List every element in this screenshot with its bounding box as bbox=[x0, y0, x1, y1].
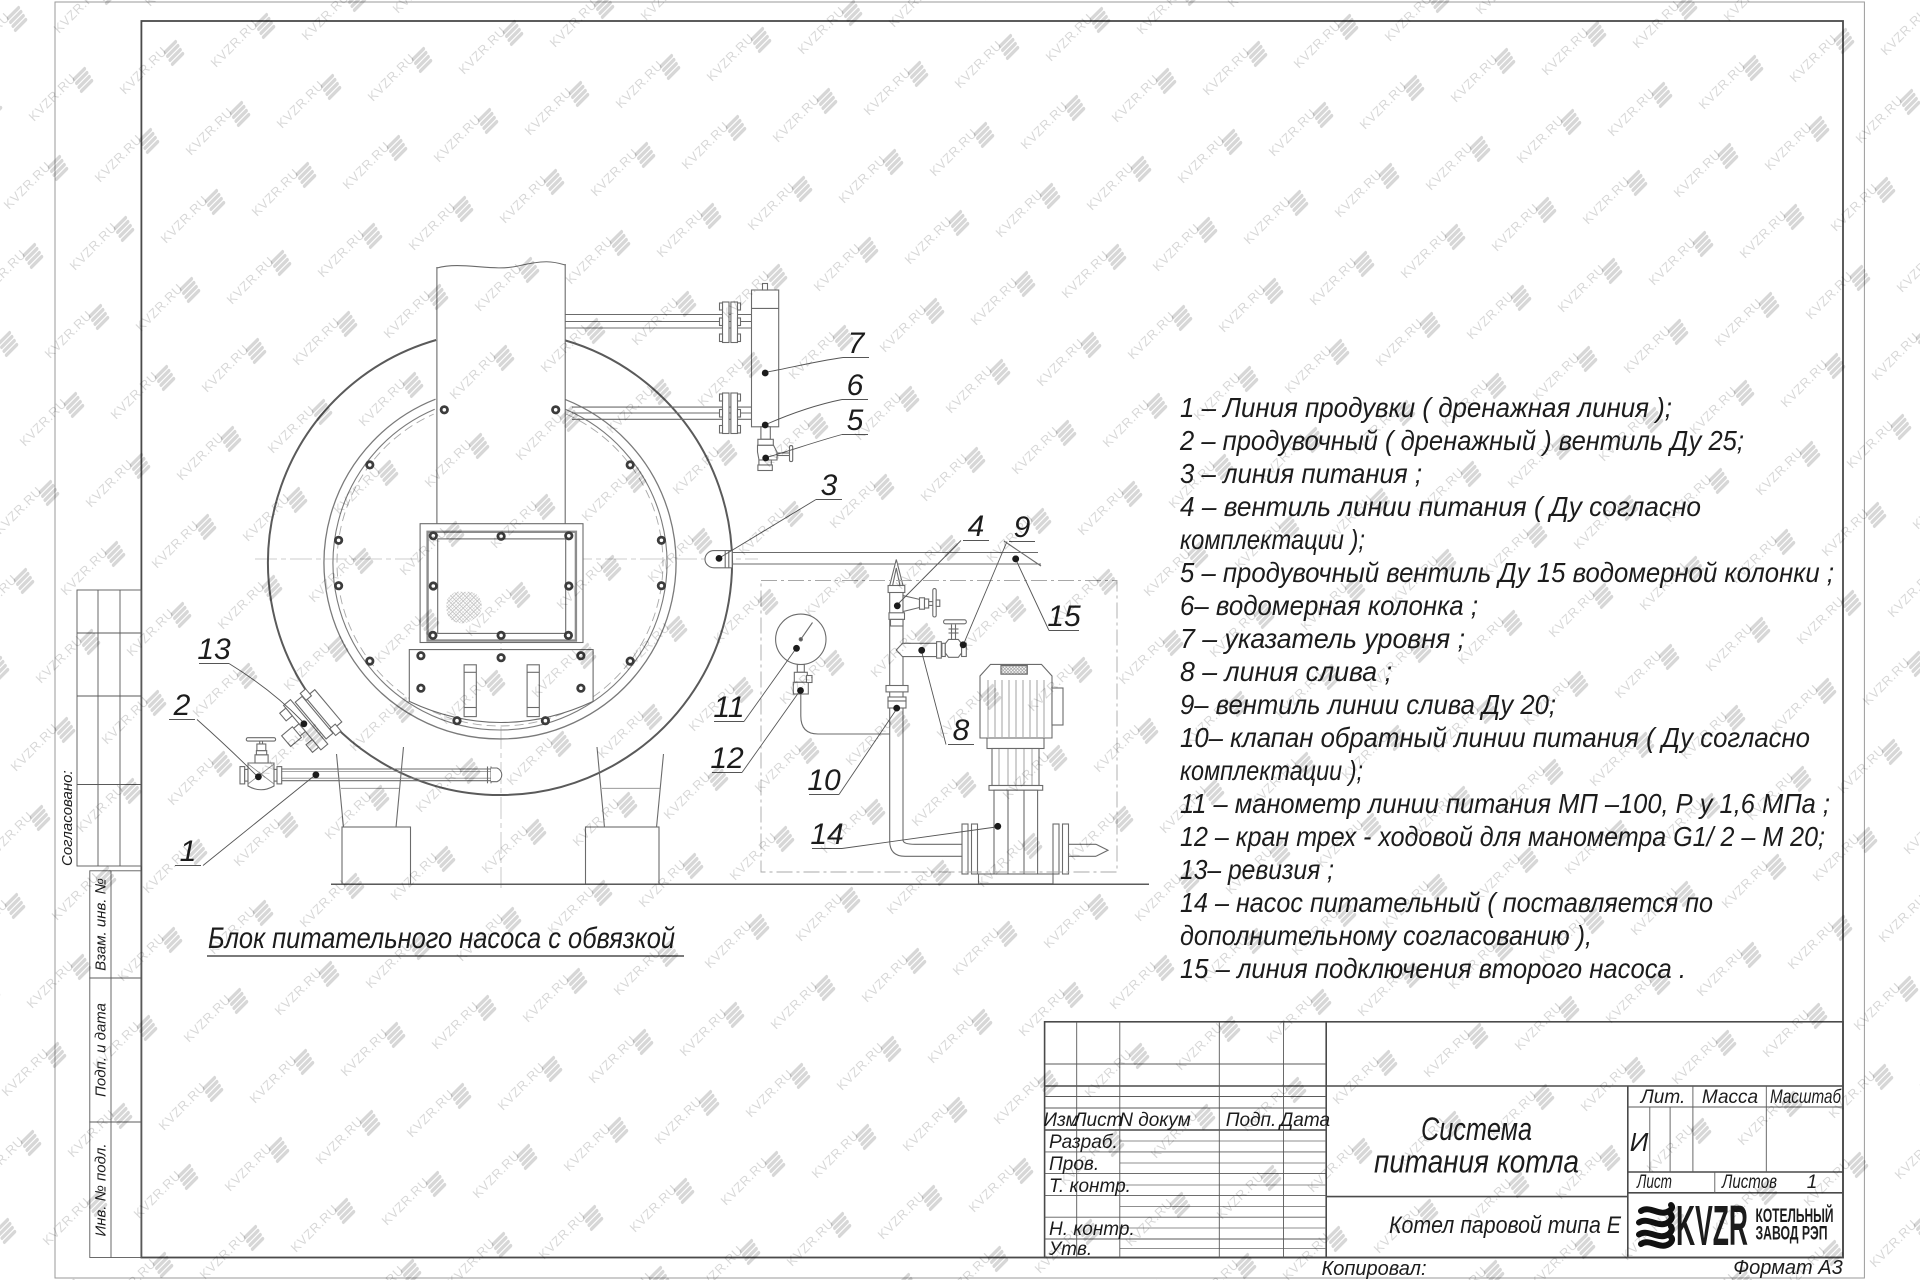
svg-text:3: 3 bbox=[821, 469, 838, 502]
svg-text:10: 10 bbox=[807, 764, 841, 797]
svg-text:Копировал:: Копировал: bbox=[1321, 1258, 1426, 1280]
svg-text:14 – насос питательный ( по: 14 – насос питательный ( поставляется по bbox=[1180, 887, 1713, 918]
svg-text:Лист: Лист bbox=[1072, 1110, 1123, 1131]
svg-text:Дата: Дата bbox=[1278, 1110, 1330, 1131]
svg-text:1 – Линия продувки ( дренажн: 1 – Линия продувки ( дренажная линия ); bbox=[1180, 392, 1672, 423]
svg-text:Согласовано:: Согласовано: bbox=[59, 770, 76, 866]
svg-text:4: 4 bbox=[968, 510, 985, 543]
svg-text:7: 7 bbox=[848, 327, 866, 360]
svg-text:13: 13 bbox=[197, 633, 231, 666]
svg-text:Блок питательного насоса с обв: Блок питательного насоса с обвязкой bbox=[208, 922, 675, 955]
svg-text:И: И bbox=[1630, 1127, 1649, 1157]
svg-text:ЗАВОД РЭП: ЗАВОД РЭП bbox=[1756, 1224, 1828, 1245]
svg-text:8 – линия слива ;: 8 – линия слива ; bbox=[1180, 656, 1392, 687]
svg-text:Инв. № подл.: Инв. № подл. bbox=[93, 1143, 110, 1236]
svg-text:15 – линия подключения второ: 15 – линия подключения второго насоса . bbox=[1180, 953, 1686, 984]
svg-text:Масса: Масса bbox=[1702, 1087, 1758, 1108]
svg-text:Взам. инв. №: Взам. инв. № bbox=[93, 878, 110, 971]
svg-text:2: 2 bbox=[173, 689, 191, 722]
svg-text:2 – продувочный ( дренажный: 2 – продувочный ( дренажный ) вентиль Ду… bbox=[1179, 425, 1744, 456]
svg-text:6: 6 bbox=[847, 369, 864, 402]
svg-text:Лит.: Лит. bbox=[1639, 1087, 1686, 1108]
